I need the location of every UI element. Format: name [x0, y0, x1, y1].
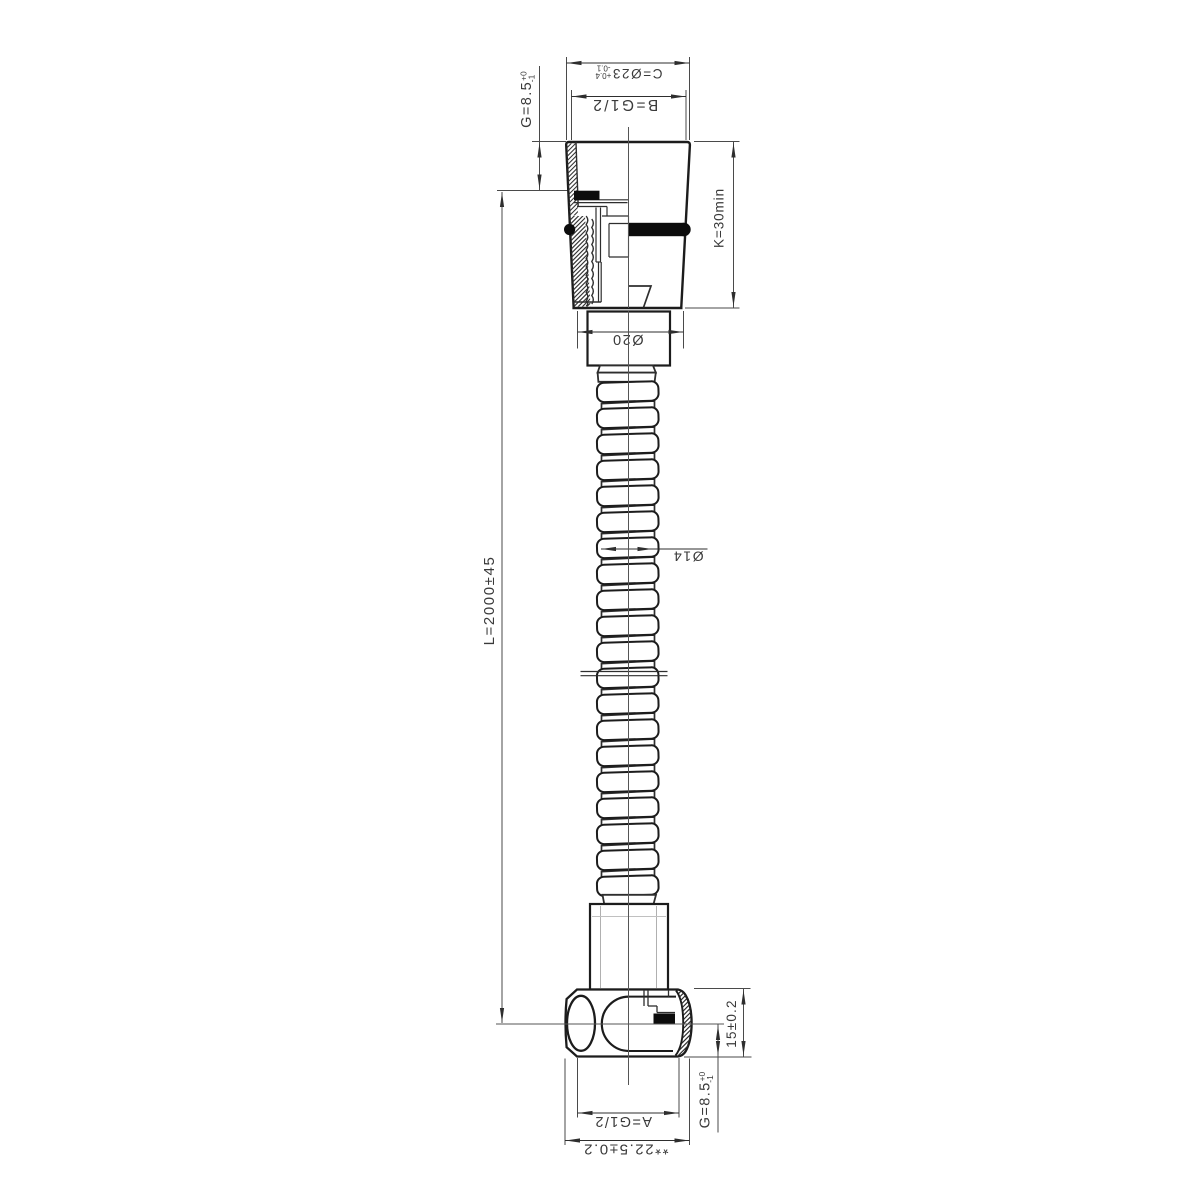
svg-text:B=G1/2: B=G1/2	[591, 96, 658, 113]
svg-text:A=G1/2: A=G1/2	[594, 1113, 652, 1129]
svg-text:Ø20: Ø20	[611, 331, 643, 347]
svg-text:G=8.5+0-1: G=8.5+0-1	[697, 1071, 715, 1128]
svg-text:**22.5±0.2: **22.5±0.2	[583, 1141, 669, 1158]
svg-text:K=30min: K=30min	[712, 188, 727, 248]
svg-text:C=Ø23+0.4-0.1: C=Ø23+0.4-0.1	[595, 64, 663, 82]
svg-text:15±0.2: 15±0.2	[724, 999, 739, 1047]
svg-text:L=2000±45: L=2000±45	[481, 556, 498, 646]
svg-text:Ø14: Ø14	[672, 549, 703, 565]
svg-text:G=8.5+0-1: G=8.5+0-1	[519, 71, 537, 128]
